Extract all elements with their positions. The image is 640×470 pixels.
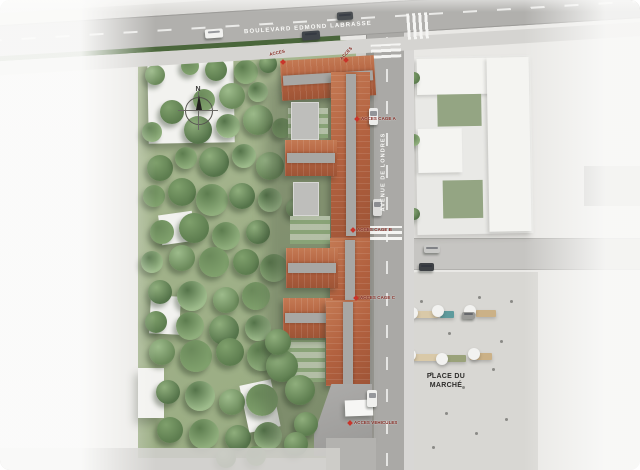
pedestrian-dot — [510, 300, 513, 303]
market-square-label: PLACE DU MARCHÉ — [413, 372, 479, 391]
site-plan-canvas: N BOULEVARD EDMOND LABRASSE AVENUE DE LO… — [0, 0, 640, 470]
bottom-road — [0, 448, 340, 470]
access-label-cage-b: ACCES CAGE B — [351, 225, 421, 234]
avenue-name-label: AVENUE DE LONDRES — [380, 133, 386, 212]
north-arrow-icon — [196, 95, 202, 110]
pedestrian-dot — [445, 412, 448, 415]
access-marker-icon — [354, 116, 360, 122]
access-marker-icon — [347, 420, 353, 426]
pedestrian-dot — [475, 432, 478, 435]
pedestrian-layer — [0, 0, 640, 470]
access-label-cage-c: ACCES CAGE C — [354, 293, 424, 302]
pedestrian-dot — [500, 340, 503, 343]
compass-icon: N — [178, 86, 218, 136]
access-marker-icon — [353, 295, 359, 301]
access-label-cage-a: ACCES CAGE A — [355, 114, 424, 123]
access-marker-icon — [350, 227, 356, 233]
pedestrian-dot — [478, 296, 481, 299]
pedestrian-dot — [505, 418, 508, 421]
pedestrian-dot — [492, 368, 495, 371]
access-marker-icon — [281, 60, 285, 64]
pedestrian-dot — [448, 332, 451, 335]
access-marker-icon — [344, 58, 348, 62]
pedestrian-dot — [432, 446, 435, 449]
access-label-vehicules: ACCES VEHICULES — [348, 418, 433, 427]
